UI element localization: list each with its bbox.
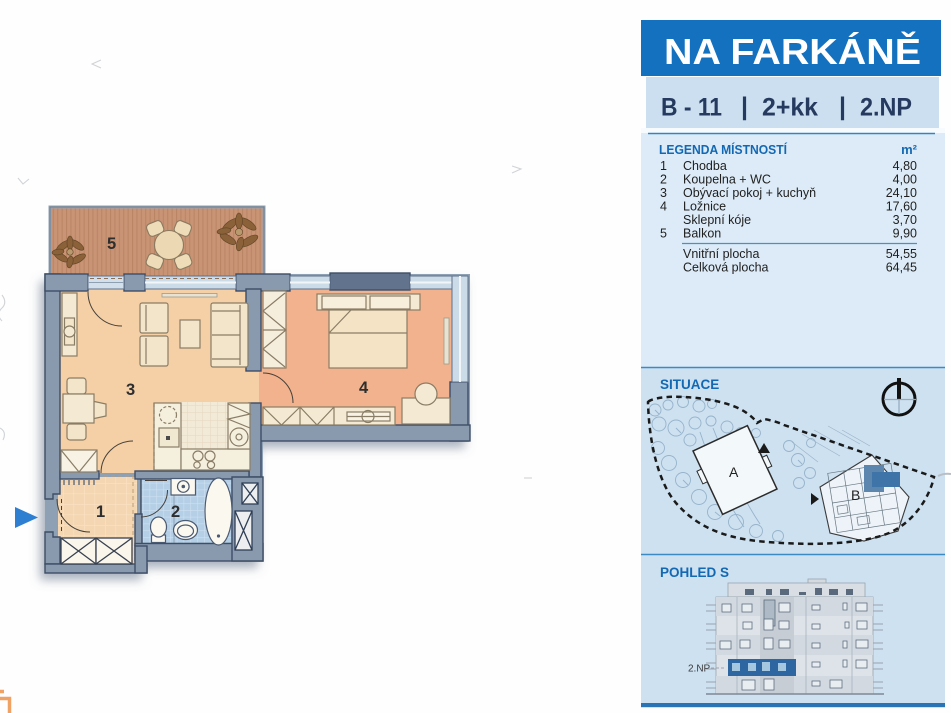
svg-text:|: | bbox=[839, 93, 846, 121]
svg-text:17,60: 17,60 bbox=[886, 200, 917, 214]
svg-text:POHLED S: POHLED S bbox=[660, 565, 729, 580]
svg-text:1: 1 bbox=[96, 503, 105, 521]
svg-text:2: 2 bbox=[660, 173, 667, 187]
svg-text:Koupelna + WC: Koupelna + WC bbox=[683, 173, 771, 187]
svg-text:4: 4 bbox=[359, 379, 369, 397]
svg-text:5: 5 bbox=[107, 235, 116, 253]
svg-text:3: 3 bbox=[660, 186, 667, 200]
svg-text:9,90: 9,90 bbox=[893, 227, 917, 241]
svg-text:NA FARKÁNĚ: NA FARKÁNĚ bbox=[664, 30, 921, 72]
svg-text:1: 1 bbox=[660, 159, 667, 173]
svg-text:Celková plocha: Celková plocha bbox=[683, 261, 769, 275]
svg-text:SITUACE: SITUACE bbox=[660, 377, 719, 392]
svg-text:3: 3 bbox=[126, 381, 135, 399]
svg-text:LEGENDA MÍSTNOSTÍ: LEGENDA MÍSTNOSTÍ bbox=[659, 142, 787, 157]
svg-text:B - 11: B - 11 bbox=[661, 94, 722, 122]
svg-text:5: 5 bbox=[660, 227, 667, 241]
svg-text:2.NP: 2.NP bbox=[688, 664, 711, 675]
svg-text:Sklepní kóje: Sklepní kóje bbox=[683, 213, 751, 227]
svg-text:Ložnice: Ložnice bbox=[683, 200, 726, 214]
svg-text:3,70: 3,70 bbox=[893, 213, 917, 227]
svg-text:Chodba: Chodba bbox=[683, 159, 727, 173]
svg-text:Vnitřní plocha: Vnitřní plocha bbox=[683, 247, 759, 261]
svg-text:Balkon: Balkon bbox=[683, 227, 721, 241]
svg-text:4: 4 bbox=[660, 200, 667, 214]
svg-text:B: B bbox=[851, 487, 860, 503]
svg-text:64,45: 64,45 bbox=[886, 261, 917, 275]
svg-text:4,00: 4,00 bbox=[893, 173, 917, 187]
svg-text:m²: m² bbox=[901, 142, 918, 157]
svg-text:|: | bbox=[741, 93, 748, 121]
svg-text:2+kk: 2+kk bbox=[762, 94, 818, 122]
svg-text:2: 2 bbox=[171, 503, 180, 521]
svg-text:24,10: 24,10 bbox=[886, 186, 917, 200]
svg-text:Obývací pokoj + kuchyň: Obývací pokoj + kuchyň bbox=[683, 186, 816, 200]
svg-text:54,55: 54,55 bbox=[886, 247, 917, 261]
svg-text:A: A bbox=[729, 464, 739, 480]
svg-text:4,80: 4,80 bbox=[893, 159, 917, 173]
svg-text:2.NP: 2.NP bbox=[860, 94, 912, 122]
